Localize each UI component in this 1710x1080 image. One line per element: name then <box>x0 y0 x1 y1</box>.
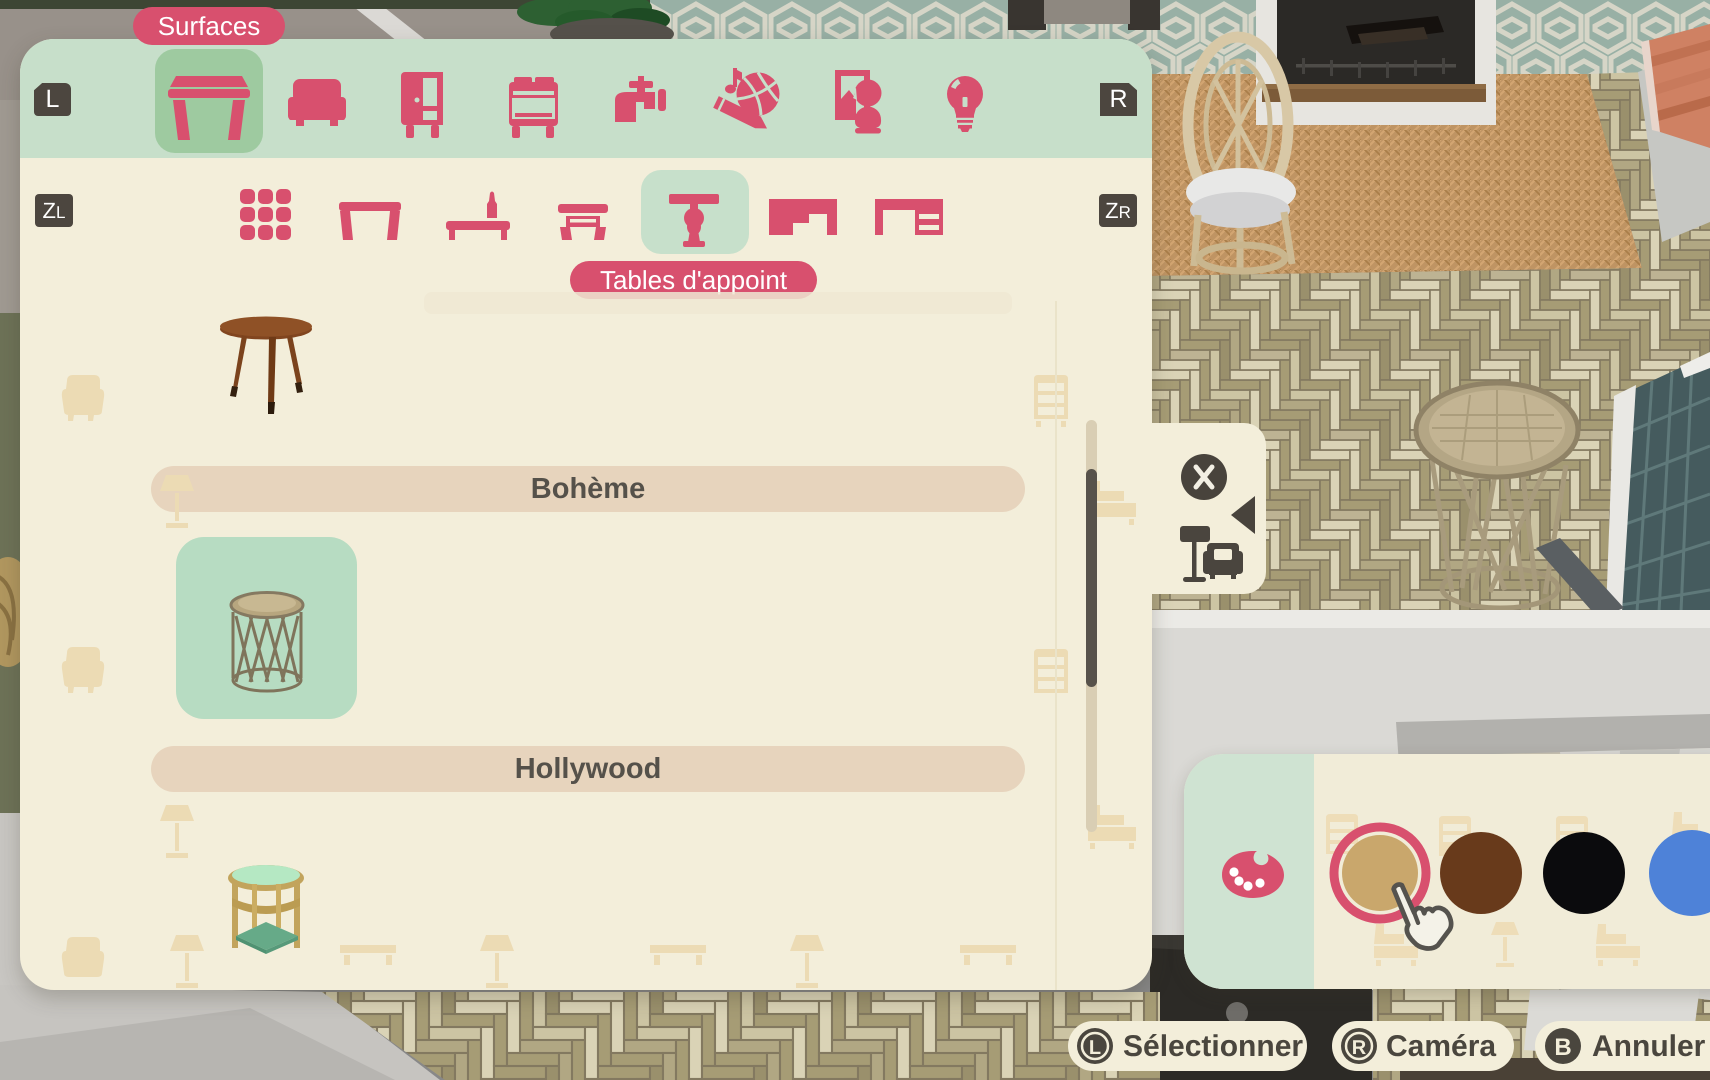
svg-text:L: L <box>1089 1037 1101 1059</box>
svg-text:Annuler: Annuler <box>1592 1030 1706 1063</box>
svg-text:Caméra: Caméra <box>1386 1030 1496 1063</box>
svg-text:Sélectionner: Sélectionner <box>1123 1030 1303 1063</box>
svg-text:R: R <box>1352 1037 1367 1059</box>
svg-text:B: B <box>1554 1034 1571 1061</box>
